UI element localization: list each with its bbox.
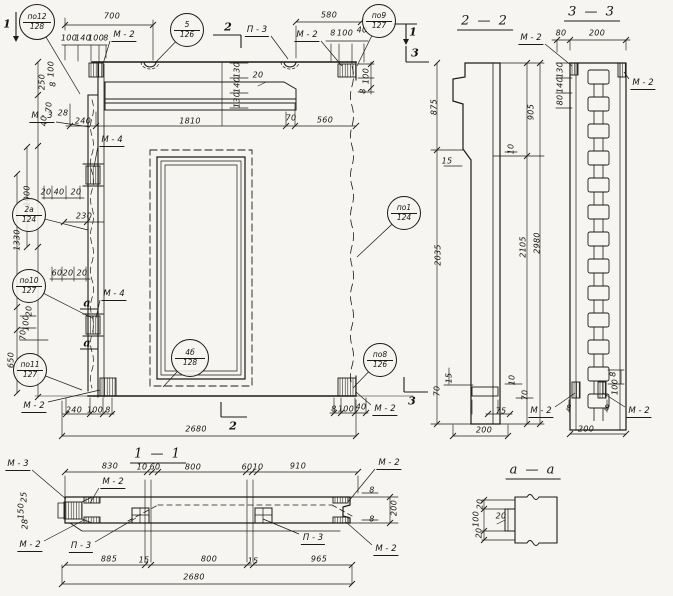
- position-callout: 2а124: [12, 198, 46, 232]
- part-label: М - 2: [372, 404, 397, 416]
- dimension-label: 10: [507, 144, 516, 155]
- part-label: М - 3: [29, 111, 54, 123]
- section-mark: а: [83, 297, 90, 310]
- dimension-label: 560: [317, 116, 333, 125]
- dimension-label: 150: [17, 503, 26, 519]
- callout-sheet-number: 124: [16, 215, 42, 225]
- dimension-label: 80: [556, 29, 567, 38]
- dimension-label: 15: [445, 373, 454, 384]
- part-label: М - 2: [100, 477, 125, 489]
- dimension-label: 70: [19, 330, 28, 341]
- dimension-label: 8: [369, 486, 374, 495]
- dimension-label: 8: [369, 515, 374, 524]
- dimension-label: 8: [566, 404, 571, 413]
- dimension-label: 1810: [179, 117, 201, 126]
- dimension-label: 10: [253, 463, 264, 472]
- dimension-label: 240: [66, 406, 82, 415]
- section-mark: 3: [408, 395, 416, 408]
- part-label: М - 2: [626, 406, 651, 418]
- part-label: П - 3: [69, 541, 93, 553]
- dimension-label: 200: [390, 500, 399, 516]
- dimension-label: 100: [338, 405, 354, 414]
- callout-position-number: по12: [27, 13, 46, 22]
- dimension-label: 20: [476, 499, 485, 510]
- callout-sheet-number: 126: [174, 30, 200, 40]
- dimension-label: 130: [233, 62, 242, 78]
- dimension-label: 20: [71, 188, 82, 197]
- dimension-label: 700: [104, 12, 120, 21]
- callout-position-number: по8: [373, 351, 387, 360]
- callout-sheet-number: 128: [175, 358, 205, 368]
- dimension-label: 100: [337, 29, 353, 38]
- dimension-label: 965: [311, 555, 327, 564]
- callout-position-number: 4б: [185, 349, 194, 358]
- callout-sheet-number: 124: [391, 213, 417, 223]
- part-label: М - 2: [17, 540, 42, 552]
- dimension-label: 910: [290, 462, 306, 471]
- dimension-label: 200: [476, 426, 492, 435]
- dimension-label: 800: [185, 463, 201, 472]
- section-mark: 1: [409, 26, 417, 39]
- dimension-label: 200: [578, 425, 594, 434]
- callout-sheet-number: 127: [16, 286, 42, 296]
- dimension-label: 20: [496, 512, 507, 521]
- dimension-label: 28: [21, 519, 30, 530]
- dimension-label: 20: [41, 188, 52, 197]
- dimension-label: 905: [527, 104, 536, 120]
- dimension-label: 8: [609, 371, 618, 376]
- dimension-label: 15: [139, 556, 150, 565]
- dimension-label: 230: [76, 212, 92, 221]
- position-callout: по10127: [12, 269, 46, 303]
- part-label: М - 2: [376, 458, 401, 470]
- section-mark: 1: [3, 18, 11, 31]
- dimension-label: 130: [556, 62, 565, 78]
- dimension-label: 20: [77, 269, 88, 278]
- dimension-label: 2980: [533, 232, 542, 254]
- dimension-label: 80: [556, 95, 565, 106]
- dimension-label: 60: [52, 269, 63, 278]
- section-mark: 2: [224, 21, 232, 34]
- part-label: П - 3: [245, 25, 269, 37]
- dimension-label: 875: [430, 99, 439, 115]
- part-label: М - 2: [21, 401, 46, 413]
- view-title: 1 — 1: [130, 447, 186, 464]
- dimension-label: 20: [475, 528, 484, 539]
- section-mark: 2: [229, 420, 237, 433]
- callout-sheet-number: 128: [23, 22, 51, 32]
- dimension-label: 100: [362, 68, 371, 84]
- section-mark: 3: [411, 47, 419, 60]
- dimension-label: 10: [137, 463, 148, 472]
- dimension-label: 70: [433, 386, 442, 397]
- part-label: М - 2: [528, 406, 553, 418]
- dimension-label: 60: [242, 463, 253, 472]
- dimension-label: 20: [63, 269, 74, 278]
- dimension-label: 2105: [519, 236, 528, 258]
- blueprint-canvas: 7001001401008580810040250100870401000281…: [0, 0, 673, 596]
- dimension-label: 140: [233, 77, 242, 93]
- dimension-label: 240: [75, 117, 91, 126]
- dimension-label: 140: [556, 77, 565, 93]
- drawing-labels: 7001001401008580810040250100870401000281…: [0, 0, 673, 596]
- position-callout: 4б128: [171, 339, 209, 377]
- dimension-label: 8: [105, 406, 110, 415]
- callout-position-number: 2а: [24, 206, 33, 215]
- dimension-label: 100: [87, 406, 103, 415]
- dimension-label: 580: [321, 11, 337, 20]
- position-callout: по9127: [362, 4, 396, 38]
- part-label: М - 4: [101, 289, 126, 301]
- dimension-label: 130: [233, 92, 242, 108]
- dimension-label: 15: [442, 157, 453, 166]
- view-title: 2 — 2: [457, 14, 513, 31]
- part-label: М - 2: [111, 30, 136, 42]
- dimension-label: 830: [102, 462, 118, 471]
- position-callout: 5126: [170, 13, 204, 47]
- dimension-label: 70: [286, 114, 297, 123]
- callout-sheet-number: 127: [366, 21, 392, 31]
- callout-position-number: по10: [19, 277, 38, 286]
- callout-position-number: по9: [372, 12, 386, 21]
- view-title: 3 — 3: [564, 5, 620, 22]
- part-label: М - 2: [294, 30, 319, 42]
- part-label: М - 2: [373, 544, 398, 556]
- dimension-label: 25: [20, 492, 29, 503]
- part-label: М - 2: [518, 33, 543, 45]
- dimension-label: 800: [201, 555, 217, 564]
- callout-position-number: 5: [185, 21, 190, 30]
- dimension-label: 70: [521, 390, 530, 401]
- position-callout: по11127: [13, 353, 47, 387]
- position-callout: по1124: [387, 196, 421, 230]
- dimension-label: 2035: [434, 244, 443, 266]
- position-callout: по8126: [363, 343, 397, 377]
- dimension-label: 885: [101, 555, 117, 564]
- callout-sheet-number: 126: [367, 360, 393, 370]
- dimension-label: 75: [496, 407, 507, 416]
- dimension-label: 200: [589, 29, 605, 38]
- part-label: П - 3: [301, 533, 325, 545]
- dimension-label: 40: [54, 188, 65, 197]
- view-title: а — а: [506, 463, 561, 480]
- part-label: М - 2: [630, 78, 655, 90]
- dimension-label: 60: [150, 463, 161, 472]
- dimension-label: 1330: [13, 229, 22, 251]
- dimension-label: 8: [604, 404, 609, 413]
- dimension-label: 40: [356, 403, 367, 412]
- callout-position-number: по1: [397, 204, 411, 213]
- callout-sheet-number: 127: [17, 370, 43, 380]
- dimension-label: 8: [49, 81, 58, 86]
- dimension-label: 28: [58, 109, 69, 118]
- dimension-label: 250: [38, 74, 47, 90]
- dimension-label: 8: [331, 405, 336, 414]
- dimension-label: 8: [330, 29, 335, 38]
- callout-position-number: по11: [20, 361, 39, 370]
- dimension-label: 100: [611, 379, 620, 395]
- part-label: М - 4: [99, 135, 124, 147]
- dimension-label: 100: [88, 34, 104, 43]
- dimension-label: 100: [472, 511, 481, 527]
- dimension-label: 8: [359, 88, 368, 93]
- dimension-label: 2680: [185, 425, 207, 434]
- section-mark: а: [83, 337, 90, 350]
- dimension-label: 20: [253, 71, 264, 80]
- position-callout: по12128: [19, 4, 55, 40]
- part-label: М - 3: [5, 459, 30, 471]
- dimension-label: 2680: [183, 573, 205, 582]
- dimension-label: 100: [47, 61, 56, 77]
- dimension-label: 10: [508, 375, 517, 386]
- dimension-label: 15: [248, 557, 259, 566]
- dimension-label: 8: [103, 34, 108, 43]
